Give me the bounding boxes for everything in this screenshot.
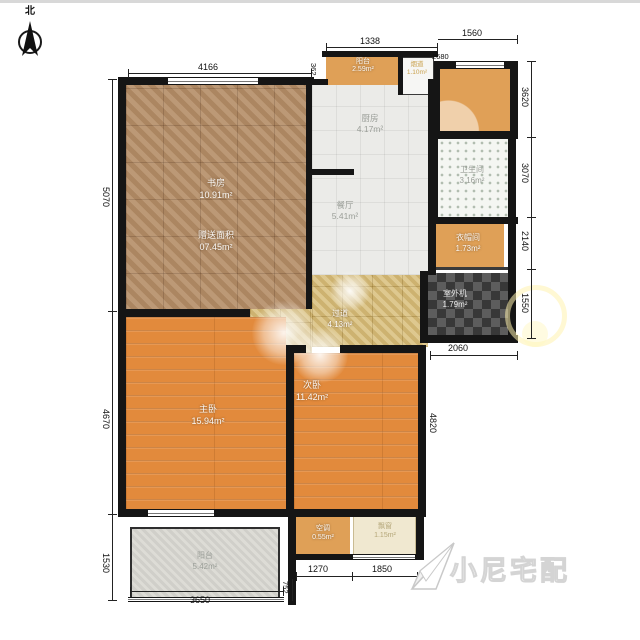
- dimension-tick: [517, 351, 518, 360]
- room-bathroom: [438, 139, 508, 217]
- dimension-tick: [128, 69, 129, 78]
- wall-segment: [510, 61, 518, 139]
- wall-segment: [306, 169, 354, 175]
- dim-right-4: 1550: [520, 293, 530, 313]
- dimension-line: [438, 39, 518, 40]
- dim-left-3: 1530: [101, 553, 111, 573]
- north-compass: 北: [10, 7, 50, 64]
- room-cloakroom: [434, 224, 504, 269]
- room-kitchen-dining: [312, 85, 428, 275]
- wall-segment: [430, 217, 518, 224]
- window-symbol: [148, 509, 214, 517]
- dimension-tick: [437, 43, 438, 52]
- dimension-line: [128, 73, 312, 74]
- dim-mid-right: 2060: [448, 343, 468, 353]
- dim-right-2: 3070: [520, 163, 530, 183]
- room-balcony-bottom: [130, 527, 280, 599]
- dim-left-1: 5070: [101, 187, 111, 207]
- wall-segment: [420, 335, 518, 343]
- dimension-line: [326, 47, 438, 48]
- dimension-tick: [326, 43, 327, 52]
- compass-icon: [12, 17, 48, 59]
- dimension-line: [130, 591, 284, 592]
- dim-bottom-1: 1270: [308, 564, 328, 574]
- dimension-line: [430, 355, 518, 356]
- dim-left-2: 4670: [101, 409, 111, 429]
- dimension-tick: [296, 572, 297, 581]
- wall-segment: [418, 345, 426, 517]
- dimension-tick: [527, 269, 536, 270]
- wall-segment: [322, 51, 438, 57]
- dimension-tick: [108, 514, 117, 515]
- room-study: [126, 85, 306, 311]
- dim-bottom-2: 1850: [372, 564, 392, 574]
- wall-segment: [508, 139, 516, 219]
- room-balcony-top: [326, 57, 400, 85]
- wall-segment: [292, 554, 353, 560]
- dimension-line: [112, 79, 113, 601]
- wall-segment: [420, 271, 428, 343]
- dim-bottom-small: 752: [281, 581, 290, 594]
- watermark-text: 小尼宅配: [450, 549, 570, 588]
- dim-bed2-height: 4820: [428, 413, 438, 433]
- dimension-line: [531, 61, 532, 339]
- dim-right-1: 3620: [520, 87, 530, 107]
- dim-top-right-inner: 2680: [432, 52, 449, 61]
- dim-top-mid: 1338: [360, 36, 380, 46]
- dimension-tick: [527, 61, 536, 62]
- room-top-right: [440, 69, 510, 131]
- wall-segment: [434, 131, 518, 139]
- wall-segment: [434, 61, 440, 139]
- dimension-tick: [527, 338, 536, 339]
- dimension-tick: [352, 572, 353, 581]
- wall-segment: [306, 77, 312, 309]
- dimension-tick: [130, 587, 131, 596]
- dimension-tick: [108, 79, 117, 80]
- wall-segment: [432, 139, 438, 217]
- dim-top-small: 362: [309, 63, 318, 76]
- window-symbol: [168, 77, 258, 85]
- dim-top-study: 4166: [198, 62, 218, 72]
- wall-segment: [398, 51, 403, 95]
- wall-segment: [118, 77, 126, 517]
- floor-plan: 北: [0, 0, 640, 640]
- lens-flare: [522, 321, 548, 347]
- dimension-line: [296, 576, 418, 577]
- wall-segment: [118, 309, 250, 317]
- dim-bottom-balcony: 3650: [190, 595, 210, 605]
- dimension-tick: [527, 137, 536, 138]
- wall-segment: [340, 345, 426, 353]
- door-arc-hall: [330, 271, 370, 311]
- room-terrace: [428, 273, 510, 335]
- north-label: 北: [10, 7, 50, 17]
- door-arc-second: [292, 327, 348, 383]
- dimension-tick: [517, 35, 518, 44]
- dimension-tick: [108, 311, 117, 312]
- dimension-tick: [430, 351, 431, 360]
- wall-segment: [286, 349, 294, 517]
- dimension-tick: [527, 217, 536, 218]
- wall-segment: [428, 267, 514, 270]
- dimension-tick: [108, 600, 117, 601]
- dim-top-right: 1560: [462, 28, 482, 38]
- room-ac: [296, 516, 350, 556]
- wall-segment: [428, 219, 434, 271]
- dimension-line: [292, 579, 293, 601]
- dim-right-3: 2140: [520, 231, 530, 251]
- window-symbol: [456, 61, 504, 69]
